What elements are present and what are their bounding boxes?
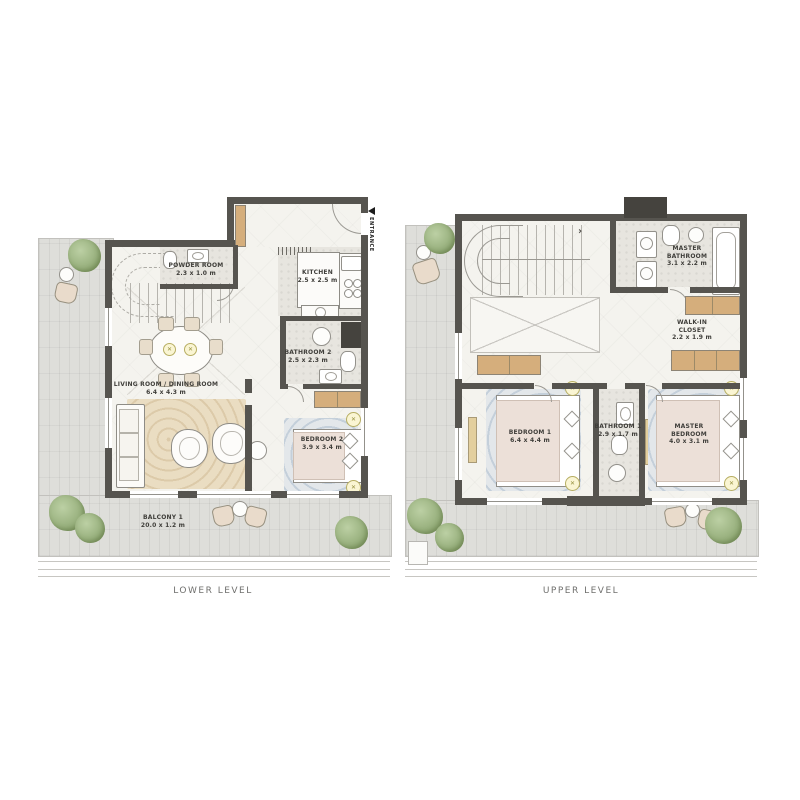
upper-level-plan: MASTER BATHROOM 3.1 x 2.2 m WALK-IN CLOS…: [402, 183, 760, 595]
wall: [552, 383, 599, 389]
shower-icon: [312, 327, 331, 346]
level-caption-lower: LOWER LEVEL: [35, 586, 391, 596]
room-label-bedroom1: BEDROOM 1 6.4 x 4.4 m: [500, 429, 560, 444]
ceiling-light-icon: [346, 412, 361, 427]
shower-icon: [608, 464, 626, 482]
pendant-light-icon: [184, 343, 197, 356]
wall: [105, 240, 235, 247]
dining-chair-icon: [139, 339, 153, 355]
hob-burner-icon: [344, 279, 353, 288]
room-name: WALK-IN CLOSET: [664, 319, 720, 334]
dresser-icon: [477, 355, 541, 375]
room-dims: 20.0 x 1.2 m: [127, 522, 199, 530]
wall: [625, 383, 639, 389]
dining-chair-icon: [158, 317, 174, 331]
window: [740, 378, 747, 420]
entrance-opening: [361, 213, 368, 235]
room-name: BALCONY 1: [127, 514, 199, 522]
wall: [610, 221, 616, 293]
tree-icon: [68, 239, 101, 272]
sink-basin-icon: [192, 252, 204, 260]
room-dims: 4.0 x 3.1 m: [664, 438, 714, 446]
room-name: POWDER ROOM: [156, 262, 236, 270]
window: [455, 428, 462, 480]
window: [455, 333, 462, 379]
room-name: MASTER BATHROOM: [660, 245, 714, 260]
wall: [160, 284, 238, 289]
wall: [245, 405, 252, 491]
room-name: BATHROOM 1: [590, 423, 646, 431]
lower-level-plan: ENTRANCE POWDER ROOM 2.3 x 1.0 m KITCHEN…: [35, 183, 391, 595]
room-name: BEDROOM 2: [293, 436, 351, 444]
entrance-label: ENTRANCE: [368, 217, 374, 259]
wall: [280, 384, 288, 389]
window: [287, 491, 339, 498]
toilet-icon: [340, 351, 356, 372]
entrance-arrow-icon: [368, 207, 375, 215]
dining-table-icon: [149, 326, 213, 375]
railing-line: [405, 561, 757, 562]
window: [487, 498, 542, 505]
wardrobe-icon: [685, 296, 740, 315]
pendant-light-icon: [163, 343, 176, 356]
window: [361, 408, 368, 456]
ceiling-light-icon: [565, 476, 580, 491]
sink-basin-icon: [640, 237, 653, 250]
kitchen-sink-icon: [341, 256, 362, 271]
room-name: LIVING ROOM / DINING ROOM: [111, 381, 221, 389]
wall: [599, 383, 607, 389]
sofa-cushion: [119, 457, 139, 481]
stair-void: [470, 297, 600, 353]
room-name: BATHROOM 2: [281, 349, 335, 357]
room-name: BEDROOM 1: [500, 429, 560, 437]
sofa-cushion: [119, 433, 139, 457]
toilet-icon: [611, 435, 628, 455]
level-caption-upper: UPPER LEVEL: [402, 586, 760, 596]
sofa-cushion: [119, 409, 139, 433]
tree-icon: [335, 516, 368, 549]
wardrobe-icon: [314, 391, 361, 408]
room-label-balcony1: BALCONY 1 20.0 x 1.2 m: [127, 514, 199, 529]
room-name: MASTER BEDROOM: [664, 423, 714, 438]
room-dims: 6.4 x 4.4 m: [500, 437, 560, 445]
wall: [455, 214, 747, 221]
entry-closet-icon: [235, 205, 246, 247]
room-dims: 2.9 x 1.7 m: [590, 431, 646, 439]
sink-basin-icon: [640, 267, 653, 280]
room-label-closet: WALK-IN CLOSET 2.2 x 1.9 m: [664, 319, 720, 342]
room-label-masterbath: MASTER BATHROOM 3.1 x 2.2 m: [660, 245, 714, 268]
room-label-powder: POWDER ROOM 2.3 x 1.0 m: [156, 262, 236, 277]
room-label-bedroom2: BEDROOM 2 3.9 x 3.4 m: [293, 436, 351, 451]
wall: [105, 240, 112, 498]
room-dims: 6.4 x 4.3 m: [111, 389, 221, 397]
window: [130, 491, 178, 498]
stair-rail-inner: [125, 267, 160, 305]
wall: [662, 383, 747, 389]
window: [740, 438, 747, 480]
room-label-masterbed: MASTER BEDROOM 4.0 x 3.1 m: [664, 423, 714, 446]
room-label-bathroom2: BATHROOM 2 2.5 x 2.3 m: [281, 349, 335, 364]
tree-icon: [424, 223, 455, 254]
window: [105, 308, 112, 346]
wall: [462, 383, 534, 389]
wall: [593, 383, 599, 498]
sink-basin-icon: [325, 372, 337, 381]
planter-box: [408, 541, 428, 565]
room-dims: 2.2 x 1.9 m: [664, 334, 720, 342]
room-dims: 2.5 x 2.5 m: [297, 277, 338, 285]
railing-line: [38, 569, 390, 570]
ceiling-light-icon: [724, 476, 739, 491]
basin-icon: [688, 227, 704, 243]
wall: [303, 384, 368, 389]
room-label-bathroom1: BATHROOM 1 2.9 x 1.7 m: [590, 423, 646, 438]
wall: [227, 197, 368, 204]
window: [652, 498, 712, 505]
hob-burner-icon: [344, 289, 353, 298]
toilet-icon: [662, 225, 680, 246]
room-label-kitchen: KITCHEN 2.5 x 2.5 m: [297, 269, 338, 284]
railing-line: [38, 576, 390, 577]
bathtub-inner: [716, 232, 736, 290]
wall: [639, 383, 645, 498]
wall: [280, 316, 368, 321]
room-dims: 2.3 x 1.0 m: [156, 270, 236, 278]
wardrobe-icon: [671, 350, 740, 371]
duct-shaft-icon: [624, 197, 667, 218]
window: [105, 398, 112, 448]
wall: [567, 496, 645, 506]
tree-icon: [435, 523, 464, 552]
dining-chair-icon: [184, 317, 200, 331]
room-dims: 3.1 x 2.2 m: [660, 260, 714, 268]
sink-basin-icon: [620, 407, 631, 421]
dining-chair-icon: [209, 339, 223, 355]
wall: [245, 379, 252, 393]
bench-icon: [468, 417, 477, 463]
railing-line: [405, 576, 757, 577]
tree-icon: [75, 513, 105, 543]
wall: [690, 287, 740, 293]
duct-shaft-icon: [341, 322, 361, 348]
stair-direction-icon: [578, 227, 582, 237]
room-label-living: LIVING ROOM / DINING ROOM 6.4 x 4.3 m: [111, 381, 221, 396]
tree-icon: [705, 507, 742, 544]
floor-plan-canvas: ENTRANCE POWDER ROOM 2.3 x 1.0 m KITCHEN…: [0, 0, 800, 800]
balcony-table-icon: [59, 267, 74, 282]
sliding-door: [197, 491, 271, 498]
room-dims: 3.9 x 3.4 m: [293, 444, 351, 452]
wall: [610, 287, 668, 293]
railing-line: [405, 569, 757, 570]
room-name: KITCHEN: [297, 269, 338, 277]
room-dims: 2.5 x 2.3 m: [281, 357, 335, 365]
railing-line: [38, 561, 390, 562]
